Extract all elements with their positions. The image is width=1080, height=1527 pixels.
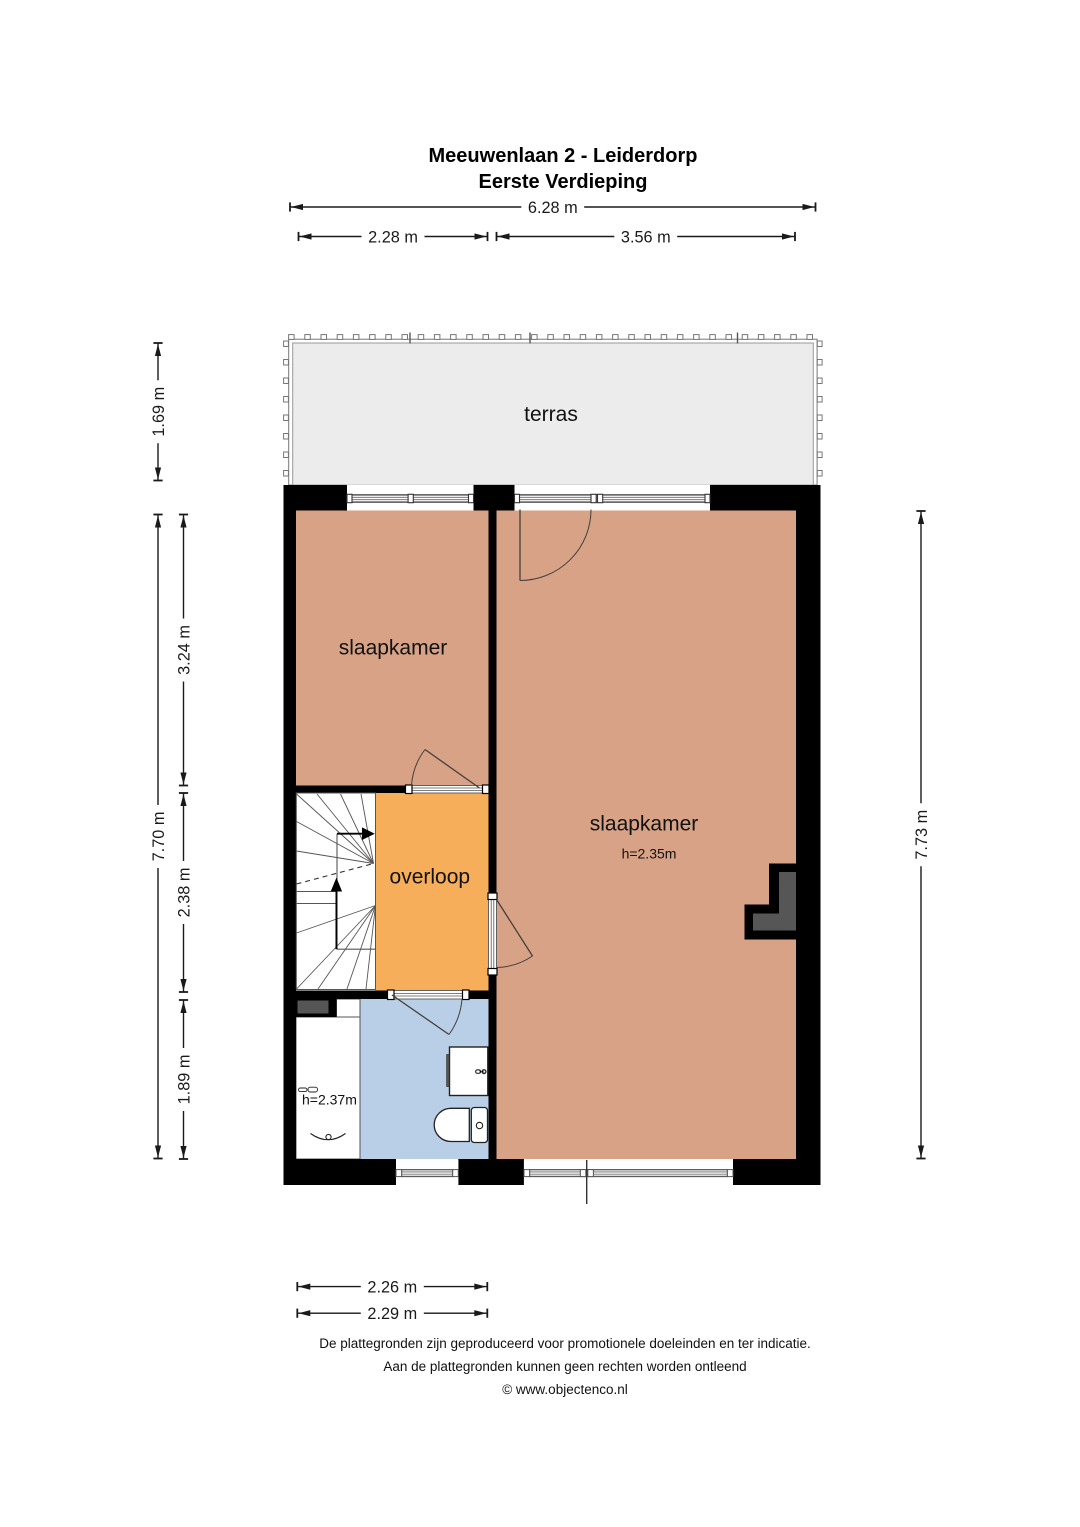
svg-text:overloop: overloop [390,866,471,889]
svg-text:7.73 m: 7.73 m [913,810,931,860]
svg-text:Aan de plattegronden kunnen ge: Aan de plattegronden kunnen geen rechten… [383,1359,746,1374]
svg-text:© www.objectenco.nl: © www.objectenco.nl [502,1382,628,1397]
svg-text:Eerste Verdieping: Eerste Verdieping [479,171,648,193]
svg-text:3.24 m: 3.24 m [175,625,193,675]
svg-text:1.69 m: 1.69 m [150,387,168,437]
svg-text:slaapkamer: slaapkamer [590,813,699,836]
svg-text:h=2.37m: h=2.37m [302,1091,357,1107]
svg-text:De plattegronden zijn geproduc: De plattegronden zijn geproduceerd voor … [319,1336,811,1351]
svg-text:h=2.35m: h=2.35m [622,846,677,862]
svg-text:6.28 m: 6.28 m [528,199,578,217]
svg-text:2.38 m: 2.38 m [175,868,193,918]
svg-text:7.70 m: 7.70 m [150,812,168,862]
svg-text:1.89 m: 1.89 m [175,1055,193,1105]
svg-text:2.28 m: 2.28 m [368,228,418,246]
svg-text:2.29 m: 2.29 m [367,1305,417,1323]
svg-text:Meeuwenlaan 2 - Leiderdorp: Meeuwenlaan 2 - Leiderdorp [429,145,698,167]
svg-text:terras: terras [524,403,578,426]
svg-text:slaapkamer: slaapkamer [339,637,448,660]
svg-text:2.26 m: 2.26 m [367,1279,417,1297]
svg-text:3.56 m: 3.56 m [621,228,671,246]
